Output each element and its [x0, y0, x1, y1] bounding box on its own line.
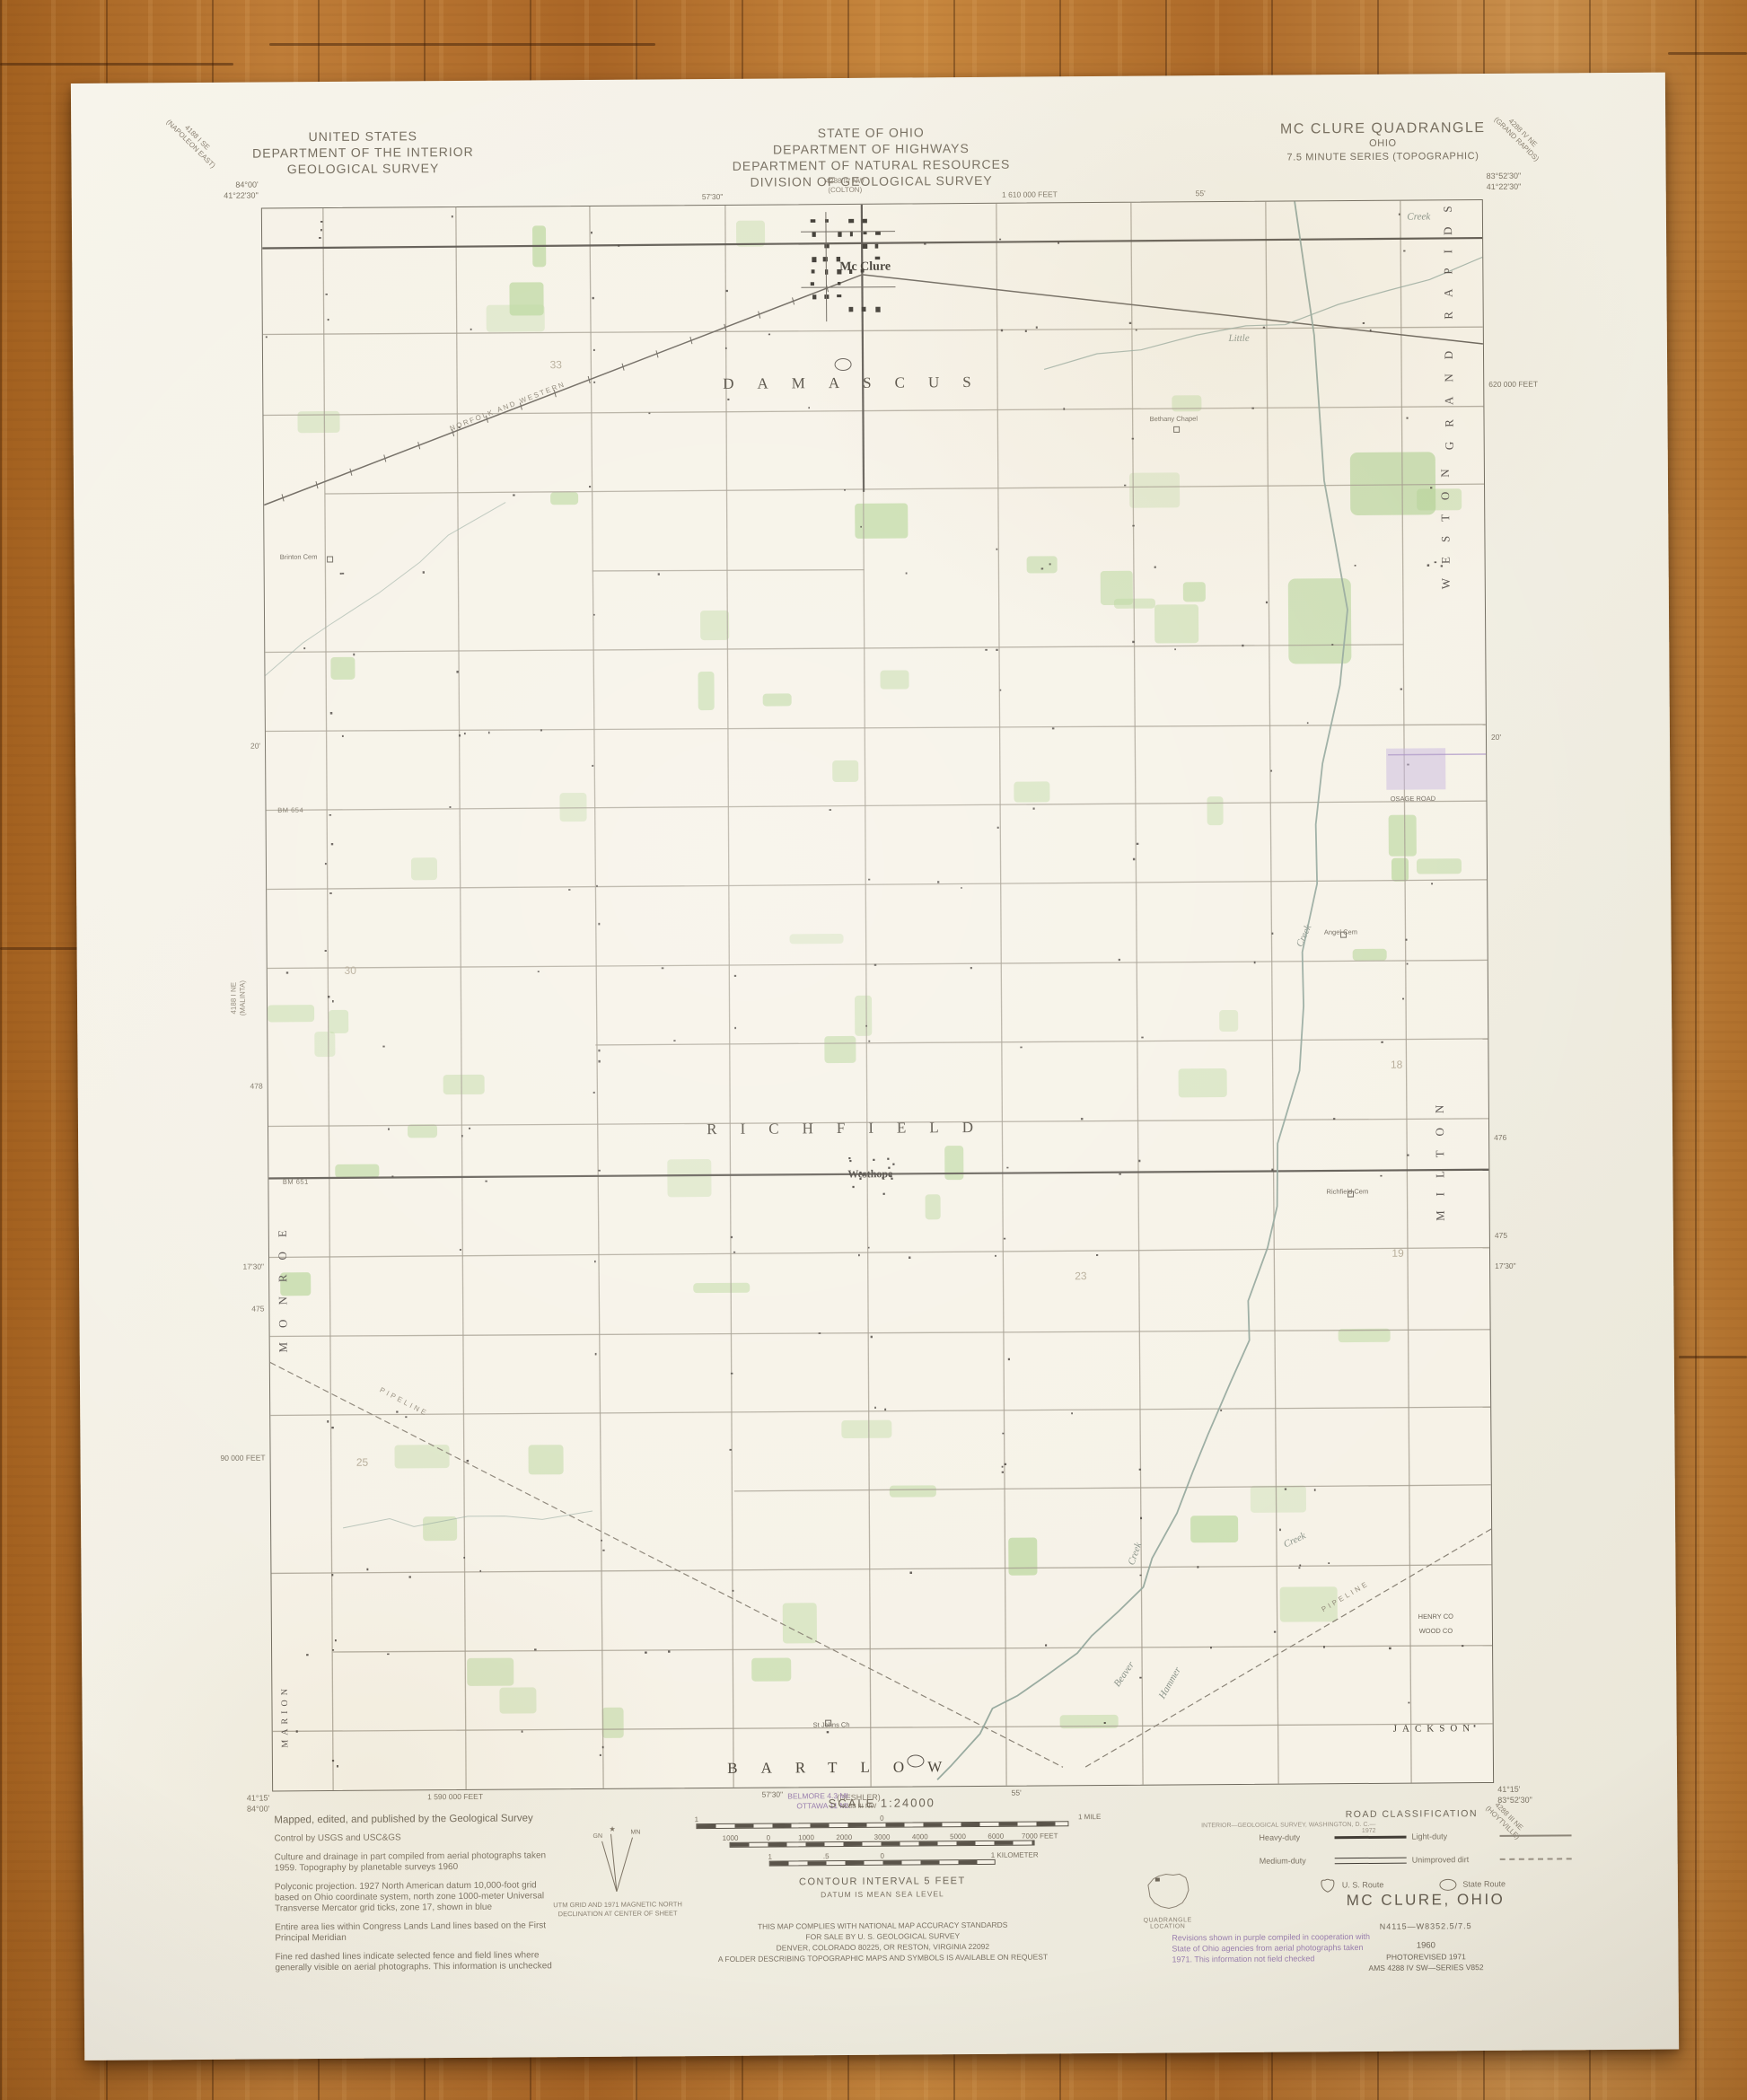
- ohio-outline: [1145, 1871, 1190, 1911]
- map-label: WOOD CO: [1419, 1627, 1453, 1635]
- scale-bar-label: 1 MILE: [1078, 1813, 1101, 1821]
- map-label: JACKSON: [1393, 1723, 1476, 1735]
- scale-bar-label: 1: [695, 1815, 699, 1823]
- scale-bar-label: 1000: [798, 1833, 814, 1841]
- usgs-line: DEPARTMENT OF THE INTERIOR: [224, 144, 502, 162]
- note-control: Control by USGS and USC&GS: [274, 1832, 561, 1844]
- sheet-year: 1960: [1277, 1939, 1574, 1951]
- map-body: DAMASCUSRICHFIELDBARTLOWJACKSONMARIONMON…: [261, 199, 1494, 1791]
- state-route-oval-icon: [1437, 1877, 1457, 1892]
- map-label: WESTON: [1437, 454, 1453, 589]
- edge-tick: 20': [1491, 732, 1563, 742]
- sheet-title-block: MC CLURE, OHIO N4115—W8352.5/7.5 1960 PH…: [1277, 1890, 1575, 1973]
- edge-tick: 17'30": [1495, 1261, 1567, 1270]
- edge-tick: 1 590 000 FEET: [427, 1792, 483, 1801]
- map-label: OSAGE ROAD: [1391, 795, 1435, 803]
- quad-location-dot: [1154, 1878, 1159, 1882]
- scale-block: SCALE 1:24000 101 MILE 10000100020003000…: [689, 1789, 1075, 1900]
- scale-bar-label: 1 KILOMETER: [991, 1851, 1039, 1859]
- scale-bar-label: 7000 FEET: [1022, 1832, 1058, 1840]
- scale-bar-miles: 101 MILE: [696, 1821, 1068, 1829]
- edge-tick: 1 610 000 FEET: [1002, 189, 1058, 198]
- plank-seam: [269, 43, 655, 46]
- note-congress-lands: Entire area lies within Congress Lands L…: [275, 1920, 562, 1944]
- plank-seam: [0, 947, 79, 950]
- contour-interval: CONTOUR INTERVAL 5 FEET: [689, 1875, 1075, 1888]
- ams-series-note: AMS 4288 IV SW—SERIES V852: [1278, 1962, 1575, 1973]
- edge-tick: 90 000 FEET: [196, 1453, 266, 1463]
- edge-tick: 55': [1012, 1788, 1022, 1797]
- note-red-lines: Fine red dashed lines indicate selected …: [275, 1950, 562, 1973]
- map-label: Mc Clure: [839, 260, 891, 275]
- map-label: 18: [1391, 1059, 1402, 1071]
- scale-bar-label: 2000: [836, 1833, 852, 1841]
- map-label: 23: [1075, 1270, 1086, 1282]
- map-label: St Johns Ch: [813, 1721, 850, 1729]
- datum-note: DATUM IS MEAN SEA LEVEL: [689, 1888, 1075, 1900]
- corner-coords-se: 41°15'83°52'30": [1497, 1784, 1532, 1806]
- plank-seam: [1668, 52, 1747, 55]
- map-label: Westhope: [847, 1167, 892, 1181]
- scale-bar-label: 5000: [950, 1832, 966, 1841]
- scale-bar-label: 0: [767, 1834, 771, 1842]
- scale-bar-label: 0: [880, 1852, 884, 1860]
- gn-label: GN: [593, 1833, 602, 1840]
- road-class-title: ROAD CLASSIFICATION: [1259, 1807, 1564, 1820]
- map-label: BARTLOW: [727, 1758, 965, 1778]
- corner-coords-sw: 41°15'84°00': [189, 1792, 269, 1814]
- adjoining-quad-n: 4288 IV NW(COLTON): [826, 177, 865, 195]
- declination-diagram: ★ MN GN: [575, 1823, 656, 1897]
- edge-tick: 57'30": [762, 1789, 784, 1798]
- sheet-code: N4115—W8352.5/7.5: [1277, 1920, 1574, 1931]
- legend-light-duty: Light-duty: [1412, 1832, 1495, 1841]
- map-label: Bethany Chapel: [1150, 415, 1198, 423]
- ohio-header: STATE OF OHIO DEPARTMENT OF HIGHWAYS DEP…: [714, 124, 1028, 190]
- plank-seam: [1679, 1356, 1747, 1358]
- quad-series: 7.5 MINUTE SERIES (TOPOGRAPHIC): [1234, 150, 1531, 165]
- sheet-name: MC CLURE, OHIO: [1277, 1890, 1574, 1910]
- scale-bar-feet: 100001000200030004000500060007000 FEET: [730, 1841, 1035, 1848]
- map-label: MILTON: [1432, 1091, 1447, 1221]
- legend-heavy-duty: Heavy-duty: [1260, 1832, 1330, 1842]
- map-label: Brinton Cem: [280, 552, 318, 560]
- map-label: 33: [549, 358, 561, 371]
- svg-text:★: ★: [609, 1825, 615, 1833]
- map-artwork: [262, 200, 1493, 1790]
- edge-tick: 17'30": [194, 1261, 264, 1271]
- compliance-block: THIS MAP COMPLIES WITH NATIONAL MAP ACCU…: [703, 1919, 1062, 1964]
- usgs-line: UNITED STATES: [224, 127, 502, 145]
- scale-bar-label: .5: [823, 1852, 830, 1860]
- note-mapped-by: Mapped, edited, and published by the Geo…: [274, 1813, 561, 1825]
- scale-bar-label: 1000: [723, 1834, 739, 1842]
- map-label: Creek: [1407, 211, 1430, 222]
- edge-tick: 476: [1494, 1132, 1566, 1142]
- scale-bar-label: 1: [768, 1853, 772, 1861]
- scale-title: SCALE 1:24000: [689, 1795, 1075, 1811]
- map-label: MONROE: [276, 1216, 291, 1352]
- unimproved-dirt-sample: [1500, 1858, 1572, 1860]
- scale-bar-label: 4000: [912, 1832, 928, 1841]
- map-label: 25: [356, 1456, 368, 1469]
- map-label: Angel Cem: [1324, 928, 1357, 936]
- medium-duty-sample: [1335, 1857, 1407, 1864]
- photo-of-topo-map: UNITED STATES DEPARTMENT OF THE INTERIOR…: [0, 0, 1747, 2100]
- map-label: MARION: [279, 1684, 289, 1748]
- map-label: RICHFIELD: [707, 1119, 996, 1138]
- legend-unimproved-dirt: Unimproved dirt: [1412, 1855, 1495, 1865]
- map-sheet: UNITED STATES DEPARTMENT OF THE INTERIOR…: [71, 73, 1679, 2060]
- edge-tick: 478: [193, 1081, 263, 1091]
- map-label: BM 651: [283, 1177, 309, 1185]
- photorevised-note: PHOTOREVISED 1971: [1277, 1951, 1574, 1962]
- heavy-duty-sample: [1335, 1835, 1407, 1839]
- scale-bar-label: 3000: [874, 1833, 891, 1841]
- edge-tick: 620 000 FEET: [1488, 380, 1560, 390]
- note-culture: Culture and drainage in part compiled fr…: [275, 1850, 562, 1874]
- edge-tick: 475: [1495, 1230, 1567, 1240]
- edge-tick: 57'30": [702, 192, 724, 201]
- ohio-line: DIVISION OF GEOLOGICAL SURVEY: [715, 172, 1029, 190]
- quad-name: MC CLURE QUADRANGLE: [1234, 120, 1531, 138]
- scale-bar-label: 6000: [988, 1832, 1004, 1841]
- margin-notes: Mapped, edited, and published by the Geo…: [274, 1813, 562, 1981]
- usgs-line: GEOLOGICAL SURVEY: [224, 160, 502, 178]
- edge-tick: 55': [1196, 189, 1206, 198]
- legend-medium-duty: Medium-duty: [1260, 1856, 1330, 1866]
- mn-label: MN: [630, 1830, 640, 1836]
- road-classification: ROAD CLASSIFICATION Heavy-duty Light-dut…: [1259, 1807, 1565, 1894]
- note-projection: Polyconic projection. 1927 North America…: [275, 1880, 562, 1914]
- map-label: DAMASCUS: [723, 373, 995, 393]
- light-duty-sample: [1500, 1834, 1572, 1837]
- corner-coords-nw: 84°00'41°22'30": [178, 180, 259, 202]
- edge-tick: 20': [190, 742, 260, 751]
- quadrangle-location: QUADRANGLE LOCATION: [1129, 1871, 1206, 1930]
- scale-bar-label: 0: [880, 1814, 884, 1823]
- scale-bar-km: 1.501 KILOMETER: [769, 1859, 996, 1867]
- state-route-item: State Route: [1437, 1877, 1506, 1893]
- map-label: Richfield Cem: [1326, 1187, 1368, 1195]
- map-label: 30: [344, 964, 356, 977]
- map-label: Little: [1228, 332, 1249, 343]
- adjoining-quad-nw: 4188 I SE(NAPOLEON EAST): [164, 111, 224, 170]
- edge-tick: 475: [194, 1305, 264, 1314]
- quad-title: MC CLURE QUADRANGLE OHIO 7.5 MINUTE SERI…: [1234, 120, 1531, 165]
- map-label: GRAND RAPIDS: [1441, 191, 1457, 450]
- declination-caption: UTM GRID AND 1971 MAGNETIC NORTH DECLINA…: [541, 1900, 694, 1919]
- usgs-header: UNITED STATES DEPARTMENT OF THE INTERIOR…: [224, 127, 502, 178]
- plank-seam: [0, 63, 233, 66]
- map-label: BM 654: [277, 805, 303, 813]
- adjoining-quad-w: 4188 I NE(MALINTA): [230, 980, 248, 1016]
- map-label: 19: [1391, 1246, 1403, 1259]
- map-label: HENRY CO: [1418, 1612, 1453, 1621]
- corner-coords-ne: 83°52'30"41°22'30": [1487, 171, 1522, 192]
